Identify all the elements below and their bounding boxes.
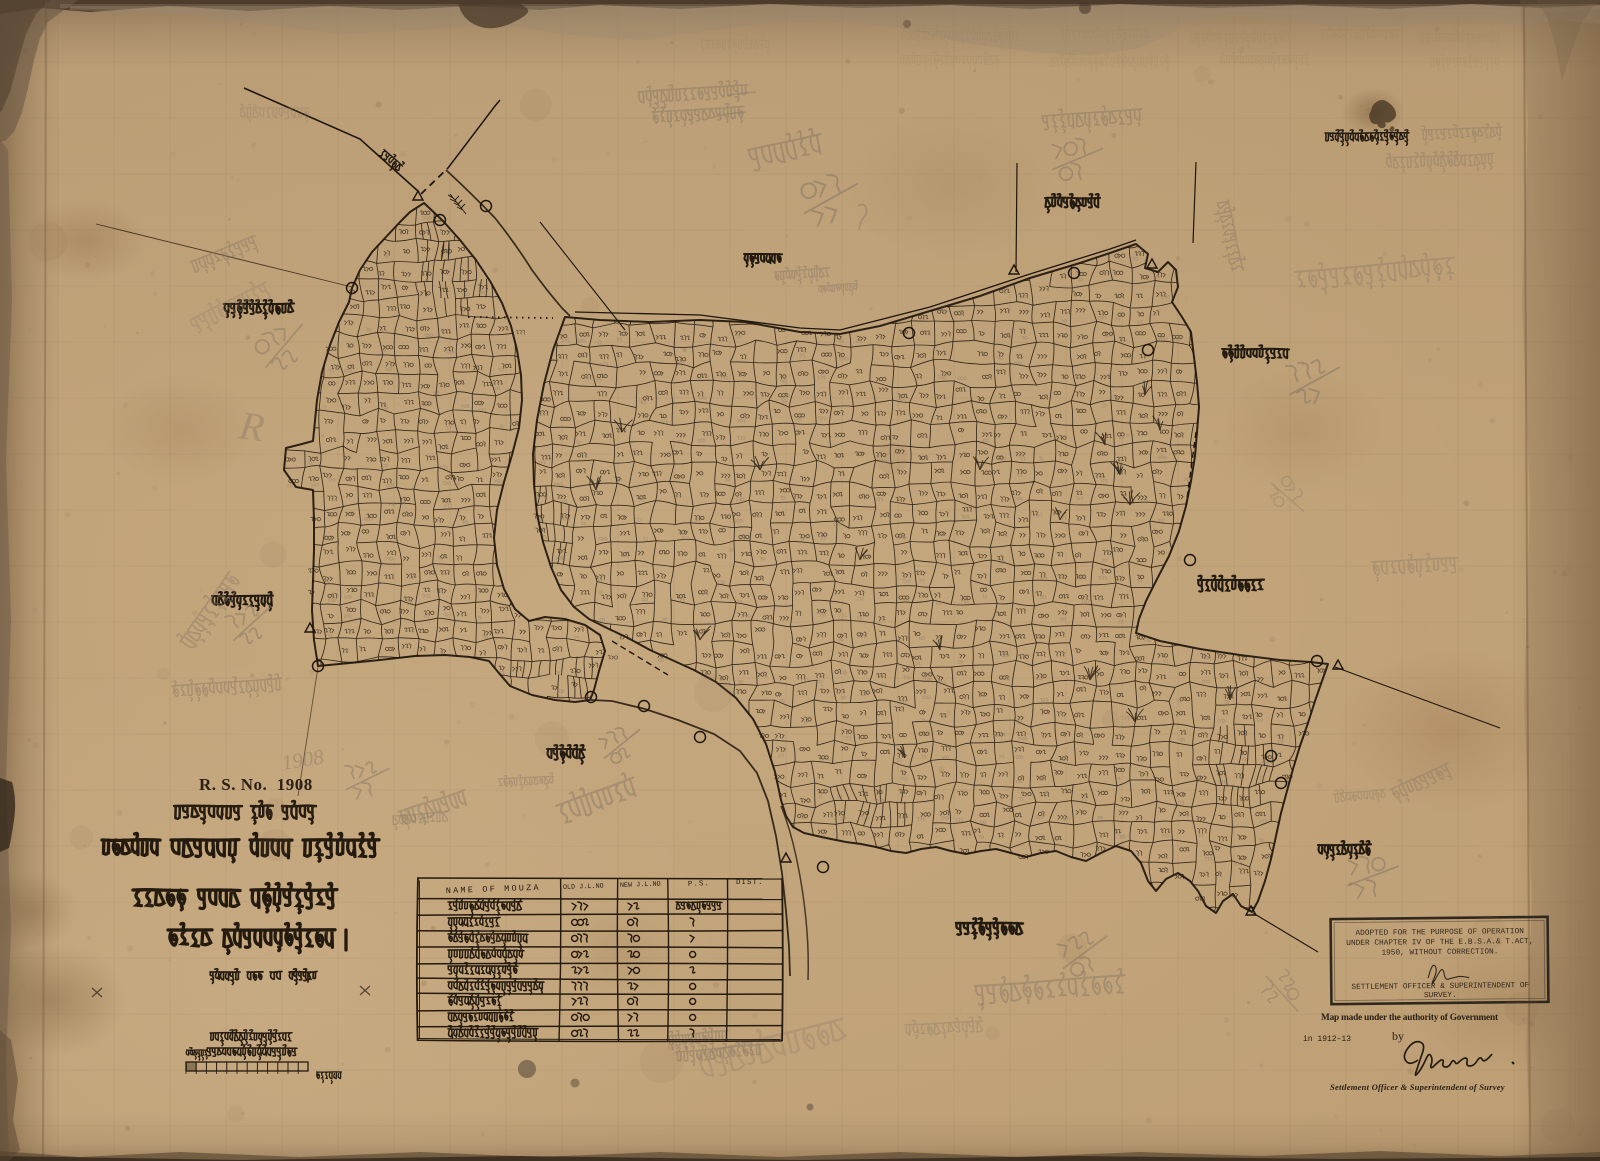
svg-text:DIST.: DIST. bbox=[736, 879, 764, 887]
svg-text:OLD J.L.NO: OLD J.L.NO bbox=[563, 883, 604, 892]
svg-text:NAME OF MOUZA: NAME OF MOUZA bbox=[446, 883, 541, 896]
svg-text:SURVEY.: SURVEY. bbox=[1424, 992, 1457, 1000]
svg-text:1950, WITHOUT CORRECTION.: 1950, WITHOUT CORRECTION. bbox=[1381, 948, 1498, 957]
svg-text:by: by bbox=[1392, 1029, 1404, 1043]
svg-text:Settlement Officer & Superinte: Settlement Officer & Superintendent of S… bbox=[1330, 1082, 1505, 1092]
svg-text:in 1912–13: in 1912–13 bbox=[1303, 1035, 1351, 1044]
svg-text:1908: 1908 bbox=[280, 745, 326, 775]
svg-text:SETTLEMENT OFFICER & SUPERINTE: SETTLEMENT OFFICER & SUPERINTENDENT OF bbox=[1351, 982, 1529, 992]
svg-text:R: R bbox=[236, 402, 267, 450]
svg-text:Map made under the authority o: Map made under the authority of Governme… bbox=[1321, 1013, 1499, 1023]
svg-text:UNDER CHAPTER IV OF THE E.B.S.: UNDER CHAPTER IV OF THE E.B.S.A.& T.ACT, bbox=[1346, 938, 1533, 948]
svg-text:P.S.: P.S. bbox=[688, 880, 710, 889]
svg-text:R. S. No. 1908: R. S. No. 1908 bbox=[199, 775, 313, 794]
